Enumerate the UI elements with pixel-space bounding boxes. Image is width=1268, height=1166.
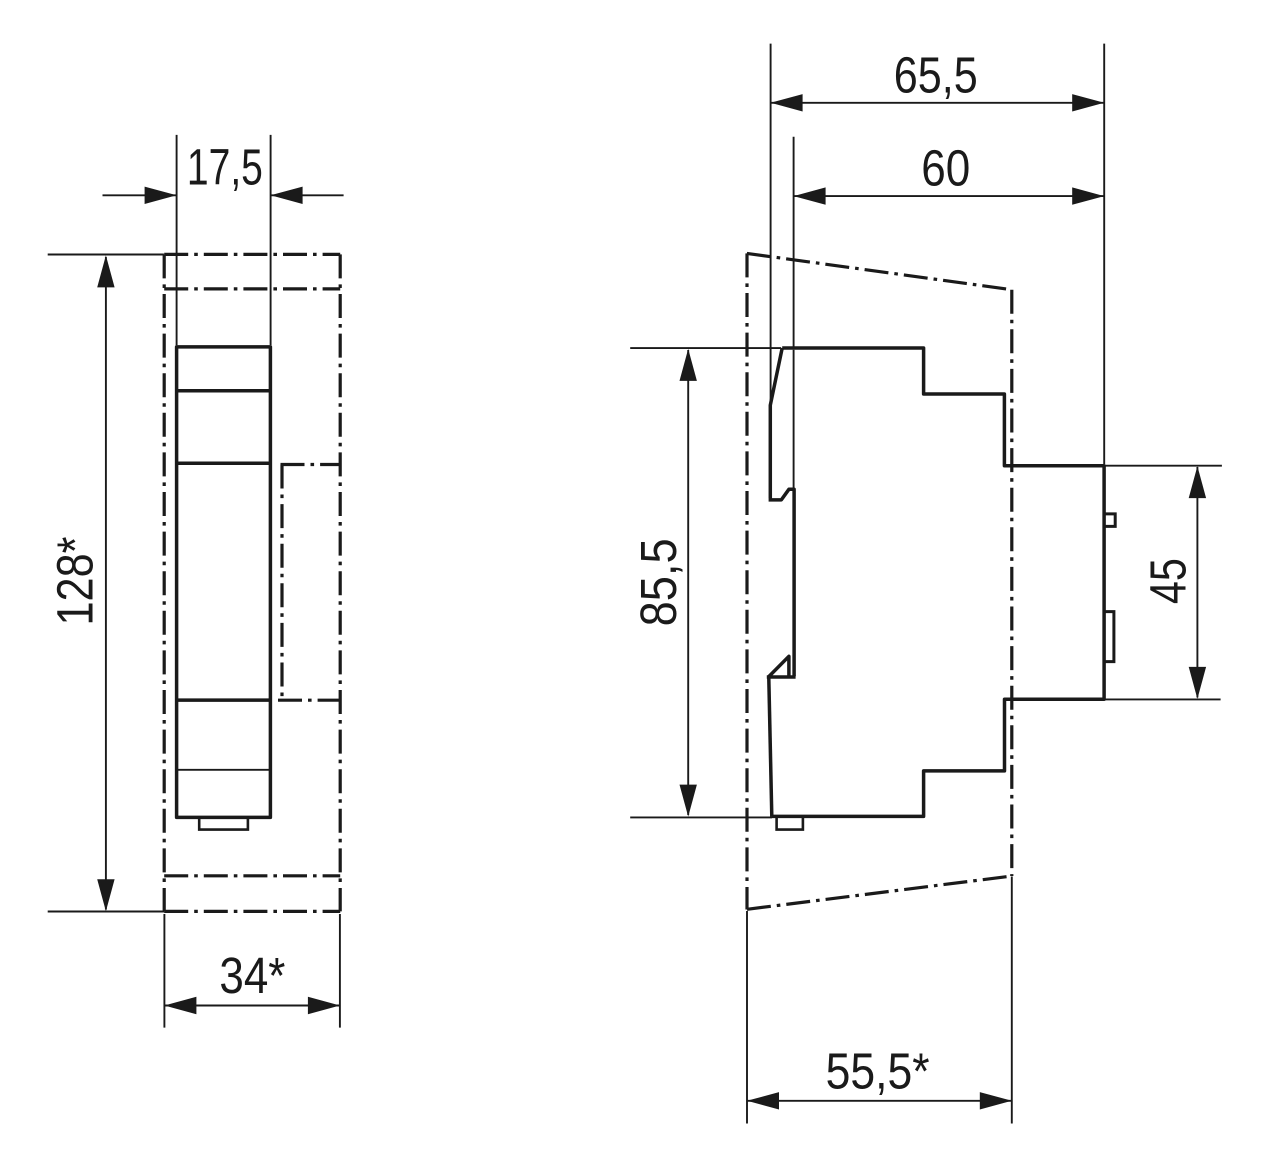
svg-text:34*: 34* [219,947,285,1004]
svg-text:128*: 128* [47,536,104,625]
svg-text:45: 45 [1140,558,1197,604]
svg-text:17,5: 17,5 [187,138,263,195]
svg-text:65,5: 65,5 [894,46,978,103]
svg-text:60: 60 [921,139,970,196]
svg-text:55,5*: 55,5* [826,1043,930,1100]
svg-text:85,5: 85,5 [630,538,687,626]
